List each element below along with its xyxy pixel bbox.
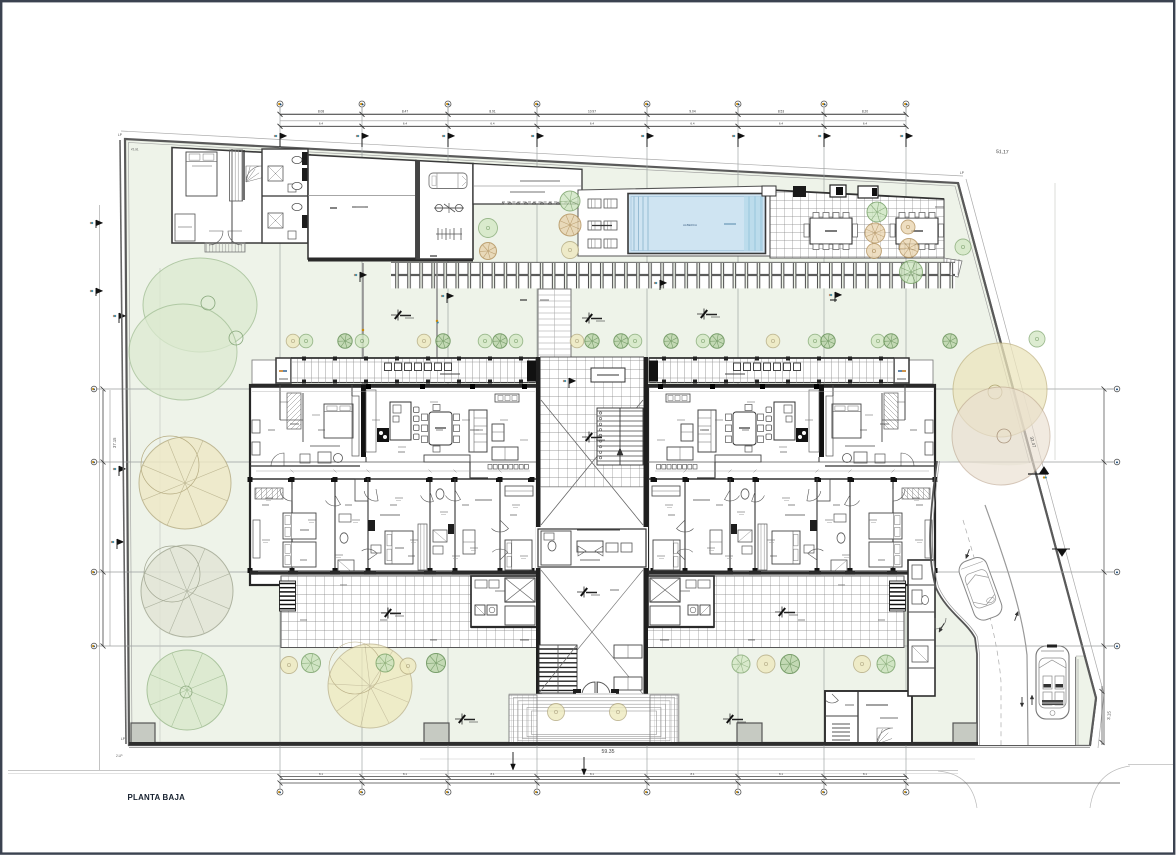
svg-text:ALBERCA: ALBERCA: [683, 223, 697, 227]
svg-text:6.4: 6.4: [403, 122, 408, 126]
svg-text:51,17: 51,17: [996, 149, 1009, 156]
svg-text:6.4: 6.4: [779, 122, 784, 126]
svg-text:6.4: 6.4: [319, 122, 324, 126]
svg-text:8.20: 8.20: [862, 110, 868, 114]
svg-text:8.1: 8.1: [691, 772, 695, 776]
svg-text:6.4: 6.4: [690, 122, 695, 126]
svg-text:9.04: 9.04: [689, 110, 695, 114]
svg-text:6.4: 6.4: [863, 122, 868, 126]
svg-text:8.1: 8.1: [863, 772, 867, 776]
svg-text:8.1: 8.1: [590, 772, 594, 776]
svg-text:8.1: 8.1: [491, 772, 495, 776]
svg-text:2.LP: 2.LP: [116, 754, 123, 758]
svg-text:PLANTA BAJA: PLANTA BAJA: [128, 793, 186, 802]
svg-text:LP: LP: [960, 171, 964, 175]
svg-text:10.97: 10.97: [588, 110, 596, 114]
svg-text:LP: LP: [121, 737, 125, 741]
svg-text:6.4: 6.4: [490, 122, 495, 126]
svg-text:8.1: 8.1: [403, 772, 407, 776]
svg-text:8.1: 8.1: [319, 772, 323, 776]
svg-text:8.91: 8.91: [489, 110, 495, 114]
svg-text:37.15: 37.15: [112, 437, 117, 448]
svg-text:6.4: 6.4: [590, 122, 595, 126]
svg-text:21,91: 21,91: [131, 147, 139, 151]
svg-text:8.1: 8.1: [779, 772, 783, 776]
svg-text:LP: LP: [118, 133, 122, 137]
svg-text:8.53: 8.53: [778, 110, 784, 114]
svg-text:59.35: 59.35: [602, 749, 615, 755]
svg-text:8.47: 8.47: [402, 110, 408, 114]
svg-text:3.15: 3.15: [1106, 710, 1112, 720]
svg-text:8.08: 8.08: [318, 110, 324, 114]
